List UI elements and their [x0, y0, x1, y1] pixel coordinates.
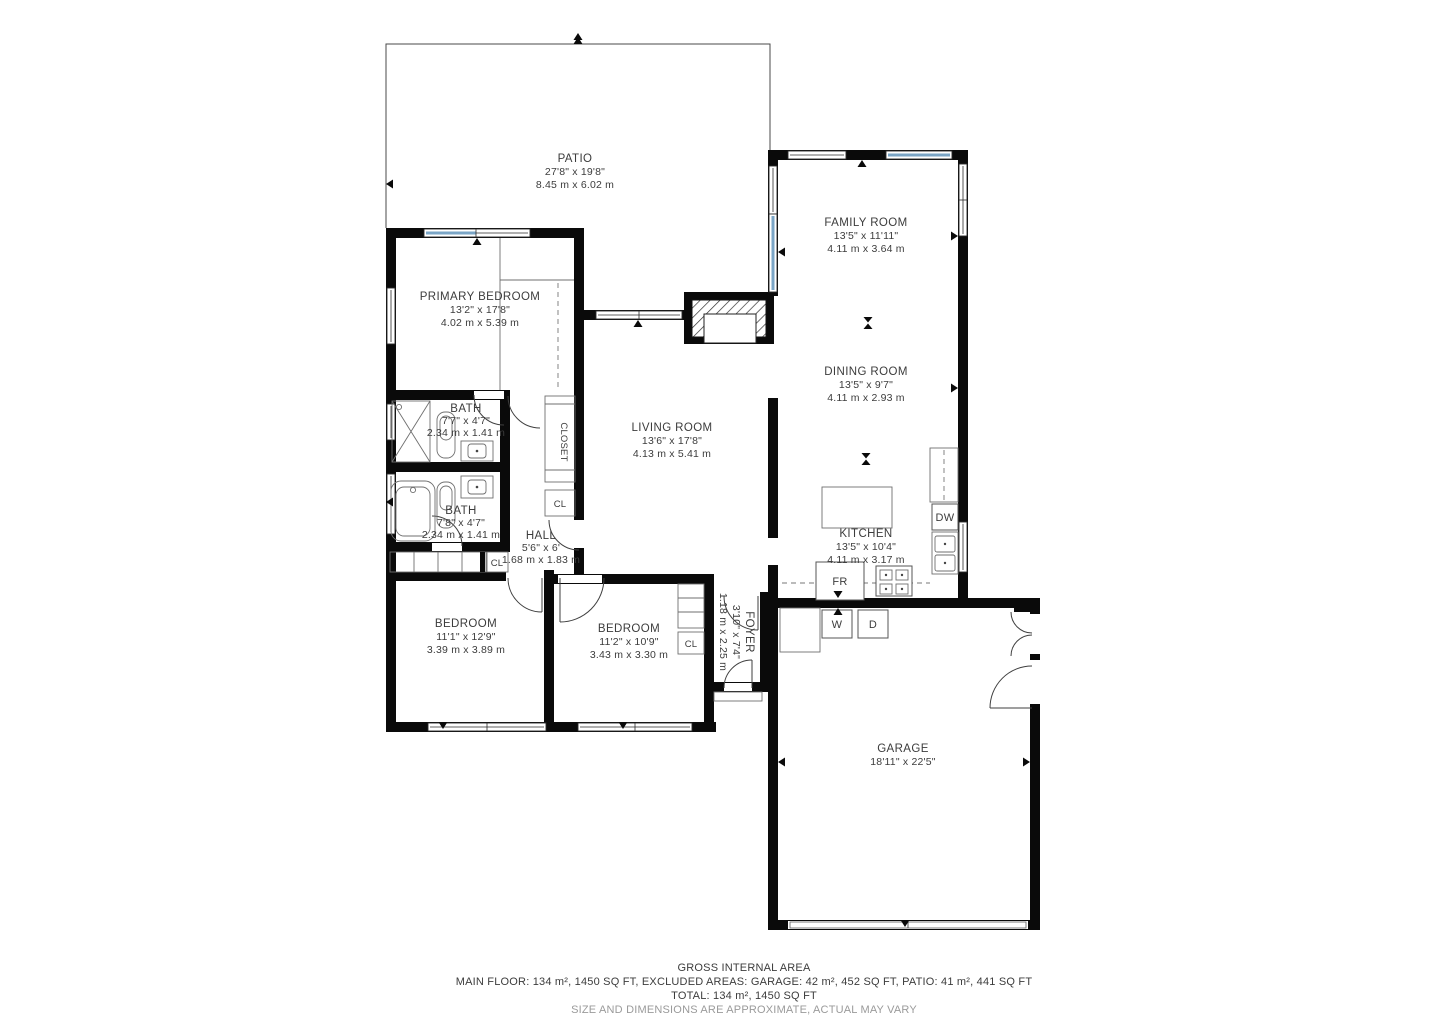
- svg-text:BATH: BATH: [450, 403, 481, 415]
- room-label-foyer: FOYER 3'10" x 7'4" 1.18 m x 2.25 m: [717, 593, 755, 671]
- svg-text:FAMILY ROOM: FAMILY ROOM: [824, 217, 907, 229]
- fridge-label: FR: [832, 576, 847, 588]
- closet-label: CLOSET: [558, 422, 569, 461]
- floor-plan-page: PATIO 27'8" x 19'8" 8.45 m x 6.02 m FAMI…: [0, 0, 1440, 1017]
- svg-text:LIVING ROOM: LIVING ROOM: [631, 422, 712, 434]
- svg-text:11'1" x 12'9": 11'1" x 12'9": [436, 631, 495, 643]
- svg-text:2.34 m x 1.41 m: 2.34 m x 1.41 m: [422, 529, 500, 541]
- room-label-kitchen: KITCHEN 13'5" x 10'4" 4.11 m x 3.17 m: [827, 528, 905, 566]
- dryer-label: D: [869, 619, 877, 631]
- svg-text:3'10" x 7'4": 3'10" x 7'4": [730, 605, 742, 659]
- svg-text:13'5" x 10'4": 13'5" x 10'4": [836, 541, 896, 553]
- cl-label: CL: [554, 499, 567, 510]
- shower: [392, 401, 430, 462]
- svg-text:7'7" x 4'7": 7'7" x 4'7": [442, 415, 490, 427]
- cl-label: CL: [491, 558, 504, 569]
- kitchen-island: [822, 487, 892, 528]
- stove: [876, 566, 912, 596]
- washer-label: W: [832, 619, 843, 631]
- svg-text:2.34 m x 1.41 m: 2.34 m x 1.41 m: [427, 427, 505, 439]
- svg-text:13'5" x 9'7": 13'5" x 9'7": [839, 379, 893, 391]
- svg-text:4.11 m x 3.64 m: 4.11 m x 3.64 m: [827, 243, 905, 255]
- room-label-bedroom-left: BEDROOM 11'1" x 12'9" 3.39 m x 3.89 m: [427, 618, 505, 656]
- footer-total: TOTAL: 134 m², 1450 SQ FT: [671, 990, 817, 1002]
- svg-text:1.18 m x 2.25 m: 1.18 m x 2.25 m: [717, 593, 729, 671]
- room-label-primary-bedroom: PRIMARY BEDROOM 13'2" x 17'8" 4.02 m x 5…: [420, 291, 541, 329]
- svg-text:PATIO: PATIO: [558, 153, 593, 165]
- room-label-garage: GARAGE 18'11" x 22'5": [870, 743, 936, 768]
- svg-text:FOYER: FOYER: [743, 611, 755, 653]
- dishwasher-label: DW: [936, 512, 955, 524]
- svg-text:KITCHEN: KITCHEN: [839, 528, 892, 540]
- svg-text:13'2" x 17'8": 13'2" x 17'8": [450, 304, 510, 316]
- svg-text:4.11 m x 2.93 m: 4.11 m x 2.93 m: [827, 392, 905, 404]
- room-label-bedroom-right: BEDROOM 11'2" x 10'9" 3.43 m x 3.30 m: [590, 623, 668, 661]
- room-label-dining-room: DINING ROOM 13'5" x 9'7" 4.11 m x 2.93 m: [824, 366, 908, 404]
- svg-text:PRIMARY BEDROOM: PRIMARY BEDROOM: [420, 291, 541, 303]
- room-label-patio: PATIO 27'8" x 19'8" 8.45 m x 6.02 m: [536, 153, 614, 191]
- svg-text:BEDROOM: BEDROOM: [598, 623, 660, 635]
- svg-text:5'6" x 6': 5'6" x 6': [522, 542, 560, 554]
- footer: GROSS INTERNAL AREA MAIN FLOOR: 134 m², …: [456, 962, 1033, 1016]
- svg-text:4.13 m x 5.41 m: 4.13 m x 5.41 m: [633, 448, 711, 460]
- room-label-living-room: LIVING ROOM 13'6" x 17'8" 4.13 m x 5.41 …: [631, 422, 712, 460]
- vanity-sink: [461, 476, 493, 498]
- svg-text:1.68 m x 1.83 m: 1.68 m x 1.83 m: [502, 554, 580, 566]
- svg-text:4.11 m x 3.17 m: 4.11 m x 3.17 m: [827, 554, 905, 566]
- upper-cabinet: [930, 448, 958, 502]
- room-label-bath-1: BATH 7'7" x 4'7" 2.34 m x 1.41 m: [427, 403, 505, 439]
- svg-text:DINING ROOM: DINING ROOM: [824, 366, 908, 378]
- svg-text:BATH: BATH: [445, 505, 476, 517]
- svg-text:3.43 m x 3.30 m: 3.43 m x 3.30 m: [590, 649, 668, 661]
- svg-text:11'2" x 10'9": 11'2" x 10'9": [599, 636, 658, 648]
- footer-disclaimer: SIZE AND DIMENSIONS ARE APPROXIMATE, ACT…: [571, 1004, 917, 1016]
- cl-label: CL: [685, 639, 698, 650]
- floor-plan-svg: PATIO 27'8" x 19'8" 8.45 m x 6.02 m FAMI…: [0, 0, 1440, 1017]
- svg-text:BEDROOM: BEDROOM: [435, 618, 497, 630]
- svg-text:13'6" x 17'8": 13'6" x 17'8": [642, 435, 702, 447]
- svg-text:7'8" x 4'7": 7'8" x 4'7": [437, 517, 485, 529]
- room-label-bath-2: BATH 7'8" x 4'7" 2.34 m x 1.41 m: [422, 505, 500, 541]
- svg-text:27'8" x 19'8": 27'8" x 19'8": [545, 166, 605, 178]
- beam-marker: [862, 453, 871, 465]
- patio-outline: [386, 44, 770, 228]
- footer-areas: MAIN FLOOR: 134 m², 1450 SQ FT, EXCLUDED…: [456, 976, 1033, 988]
- svg-text:13'5" x 11'11": 13'5" x 11'11": [834, 230, 899, 242]
- kitchen-sink: [932, 532, 958, 574]
- svg-text:18'11" x 22'5": 18'11" x 22'5": [870, 756, 936, 768]
- fireplace: [684, 292, 774, 344]
- beam-marker: [864, 317, 873, 329]
- svg-text:4.02 m x 5.39 m: 4.02 m x 5.39 m: [441, 317, 519, 329]
- vanity-sink: [461, 441, 493, 461]
- utility-counter: [780, 608, 820, 652]
- svg-text:HALL: HALL: [526, 530, 557, 542]
- svg-text:8.45 m x 6.02 m: 8.45 m x 6.02 m: [536, 179, 614, 191]
- room-label-family-room: FAMILY ROOM 13'5" x 11'11" 4.11 m x 3.64…: [824, 217, 907, 255]
- svg-text:3.39 m x 3.89 m: 3.39 m x 3.89 m: [427, 644, 505, 656]
- footer-title: GROSS INTERNAL AREA: [678, 962, 811, 974]
- svg-text:GARAGE: GARAGE: [877, 743, 929, 755]
